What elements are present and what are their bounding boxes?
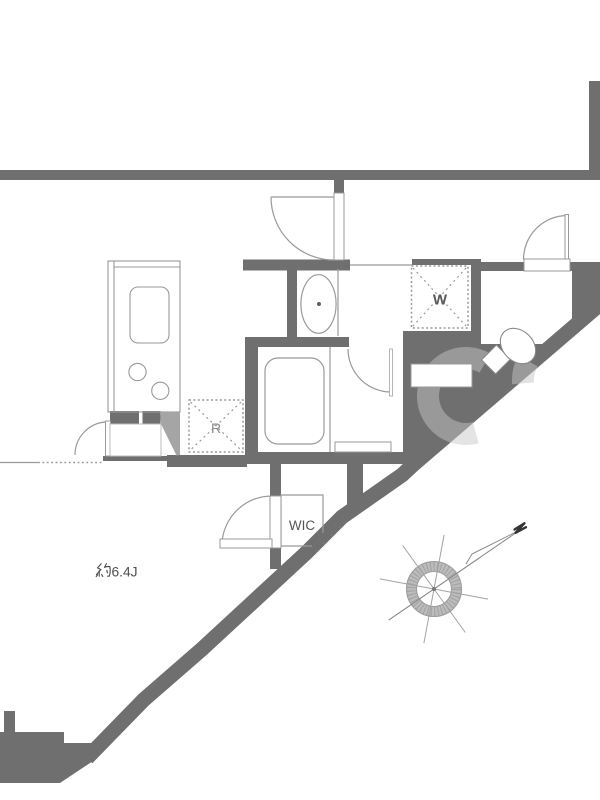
svg-text:R: R [211, 420, 221, 436]
svg-text:6.4J: 6.4J [112, 565, 138, 580]
svg-text:WIC: WIC [289, 518, 315, 533]
svg-text:W: W [433, 292, 448, 309]
